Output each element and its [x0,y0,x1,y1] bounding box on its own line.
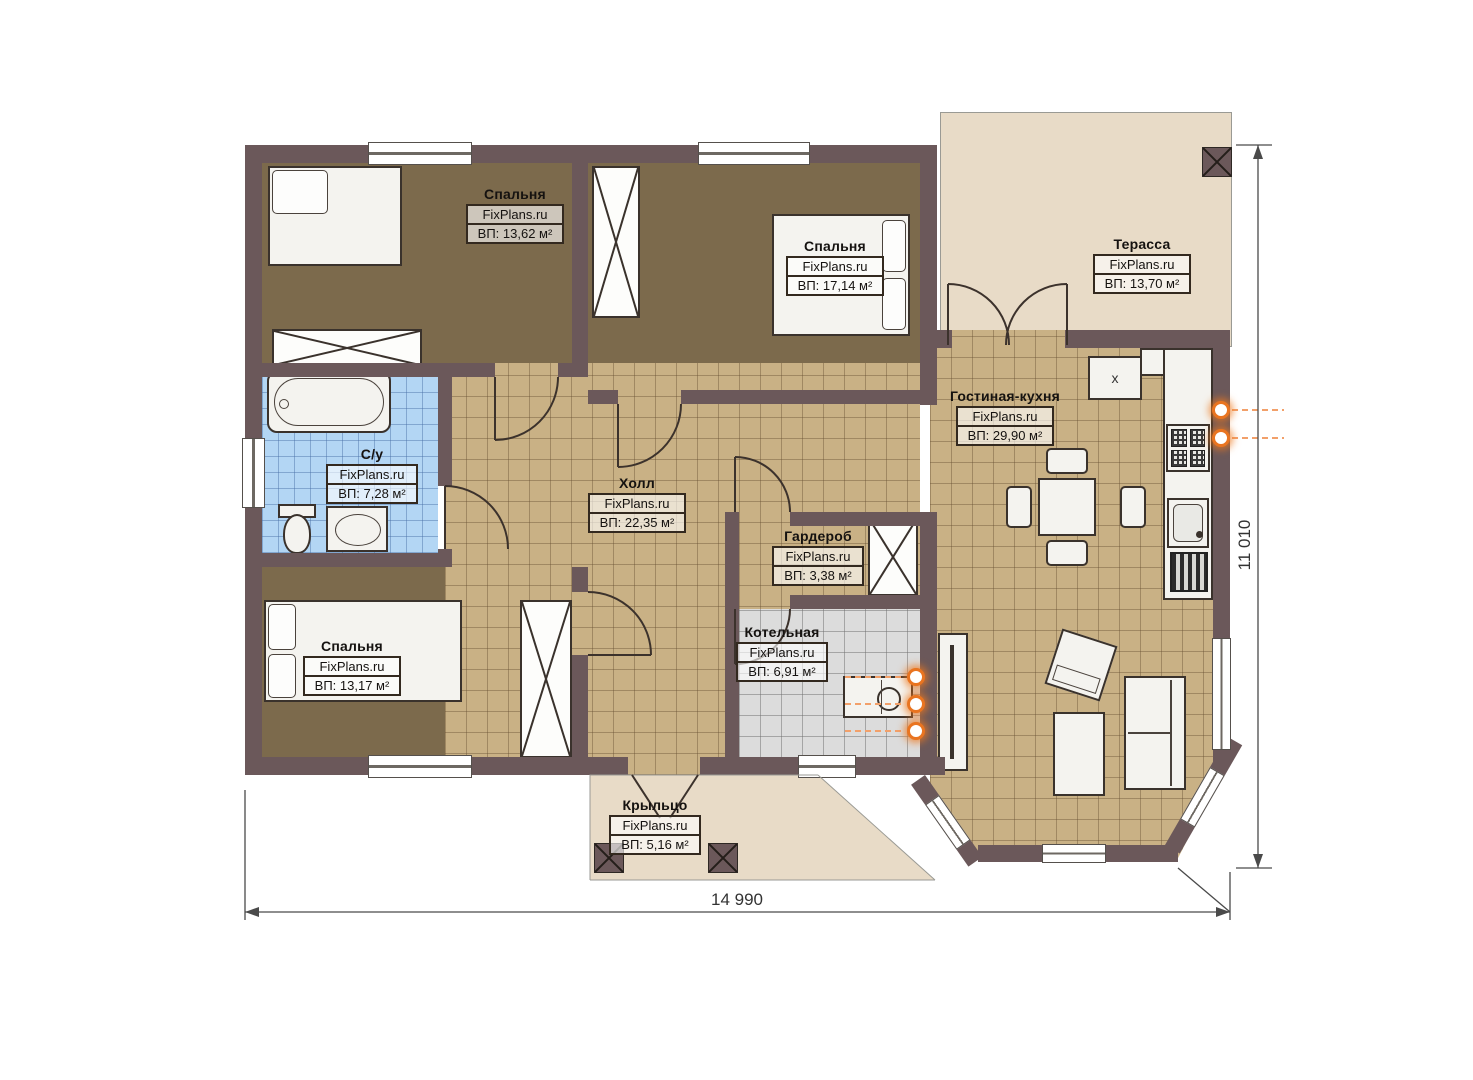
wall [681,390,922,404]
room-area: ВП: 13,62 м² [468,225,563,242]
brand-label: FixPlans.ru [611,817,698,836]
room-label-hall: Холл FixPlans.ru ВП: 22,35 м² [547,475,727,533]
wall [920,330,952,348]
wall [572,655,588,758]
room-name: Гардероб [728,528,908,544]
room-label-terrace: Терасса FixPlans.ru ВП: 13,70 м² [1052,236,1232,294]
room-label-bedroom-1: Спальня FixPlans.ru ВП: 13,62 м² [425,186,605,244]
kitchen-sink [1167,498,1209,548]
room-area: ВП: 17,14 м² [788,277,883,294]
utility-point-icon [907,695,925,713]
room-name: Терасса [1052,236,1232,252]
room-label-porch: Крыльцо FixPlans.ru ВП: 5,16 м² [565,797,745,855]
room-name: Холл [547,475,727,491]
toilet-bowl [283,514,311,554]
brand-label: FixPlans.ru [590,495,685,514]
chair [1046,540,1088,566]
brand-label: FixPlans.ru [774,548,861,567]
wardrobe-cabinet [272,329,422,367]
sofa [1124,676,1186,790]
wall [588,390,618,404]
wall [1213,330,1230,640]
wall [1065,330,1230,348]
dimension-height-label: 11 010 [1235,520,1254,571]
boiler [843,676,913,718]
brand-label: FixPlans.ru [328,466,415,485]
room-label-boiler-room: Котельная FixPlans.ru ВП: 6,91 м² [692,624,872,682]
wall [920,512,937,757]
chair [1120,486,1146,528]
wall [445,363,495,377]
wall [245,553,452,567]
chair [1046,448,1088,474]
brand-label: FixPlans.ru [958,408,1053,427]
room-area: ВП: 6,91 м² [738,663,825,680]
room-area: ВП: 13,70 м² [1095,275,1190,292]
room-name: Спальня [425,186,605,202]
room-name: Спальня [262,638,442,654]
room-name: Спальня [745,238,925,254]
tv [950,645,954,759]
room-area: ВП: 3,38 м² [774,567,861,584]
bathtub [267,371,391,433]
room-area: ВП: 29,90 м² [958,427,1053,444]
column [1202,147,1232,177]
appliance-marker-box: х [1088,356,1142,400]
sink-vanity [326,506,388,552]
brand-label: FixPlans.ru [788,258,883,277]
wall [245,363,445,377]
room-name: Котельная [692,624,872,640]
stove [1166,424,1210,472]
room-area: ВП: 5,16 м² [611,836,698,853]
utility-point-icon [907,722,925,740]
wall [245,145,937,163]
room-label-bedroom-3: Спальня FixPlans.ru ВП: 13,17 м² [262,638,442,696]
brand-label: FixPlans.ru [305,658,400,677]
brand-label: FixPlans.ru [738,644,825,663]
room-label-bedroom-2: Спальня FixPlans.ru ВП: 17,14 м² [745,238,925,296]
wardrobe-cabinet [520,600,572,758]
window [698,142,810,165]
room-name: Крыльцо [565,797,745,813]
room-label-living-kitchen: Гостиная-кухня FixPlans.ru ВП: 29,90 м² [915,388,1095,446]
utility-point-icon [1212,429,1230,447]
brand-label: FixPlans.ru [468,206,563,225]
window [798,755,856,778]
brand-label: FixPlans.ru [1095,256,1190,275]
pillow [272,170,328,214]
appliance-marker: х [1112,370,1119,386]
floor-plan: х [0,0,1473,1080]
room-label-bathroom: С/у FixPlans.ru ВП: 7,28 м² [282,446,462,504]
window [1212,638,1231,750]
dining-table [1038,478,1096,536]
utility-point-icon [1212,401,1230,419]
wall [790,512,922,526]
utility-point-icon [907,668,925,686]
wall [790,595,922,609]
room-area: ВП: 13,17 м² [305,677,400,694]
room-name: С/у [282,446,462,462]
dishwasher [1170,552,1208,592]
dimension-width-label: 14 990 [711,890,763,909]
room-name: Гостиная-кухня [915,388,1095,404]
window [368,142,472,165]
room-area: ВП: 22,35 м² [590,514,685,531]
wall [572,567,588,592]
coffee-table [1053,712,1105,796]
room-label-wardrobe: Гардероб FixPlans.ru ВП: 3,38 м² [728,528,908,586]
window [1042,844,1106,863]
window [242,438,265,508]
wall [572,145,588,377]
wall [558,363,576,377]
terrace-floor [940,112,1232,347]
chair [1006,486,1032,528]
room-area: ВП: 7,28 м² [328,485,415,502]
window [368,755,472,778]
